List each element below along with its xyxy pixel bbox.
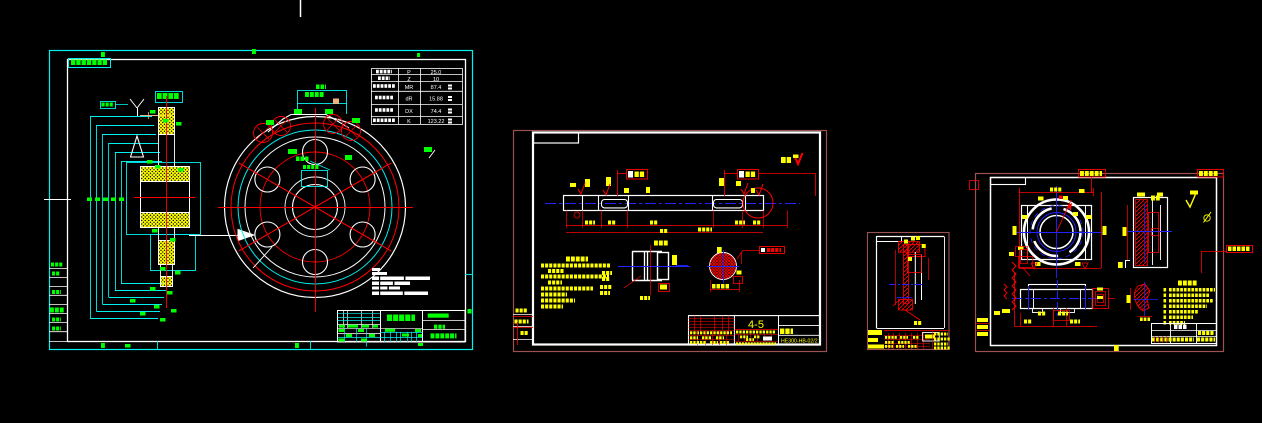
svg-text:87.4: 87.4 xyxy=(431,85,442,91)
svg-text:dR: dR xyxy=(405,97,412,103)
svg-text:74.4: 74.4 xyxy=(431,109,442,115)
svg-text:P: P xyxy=(407,70,411,76)
svg-text:25.0: 25.0 xyxy=(431,70,442,76)
svg-text:123.22: 123.22 xyxy=(428,119,445,125)
svg-text:MR: MR xyxy=(405,85,414,91)
svg-text:K: K xyxy=(407,119,411,125)
svg-text:15.88: 15.88 xyxy=(429,97,443,103)
svg-text:HE300-HB-02/2: HE300-HB-02/2 xyxy=(781,339,818,345)
svg-text:10: 10 xyxy=(433,77,439,83)
svg-text:DX: DX xyxy=(405,109,413,115)
